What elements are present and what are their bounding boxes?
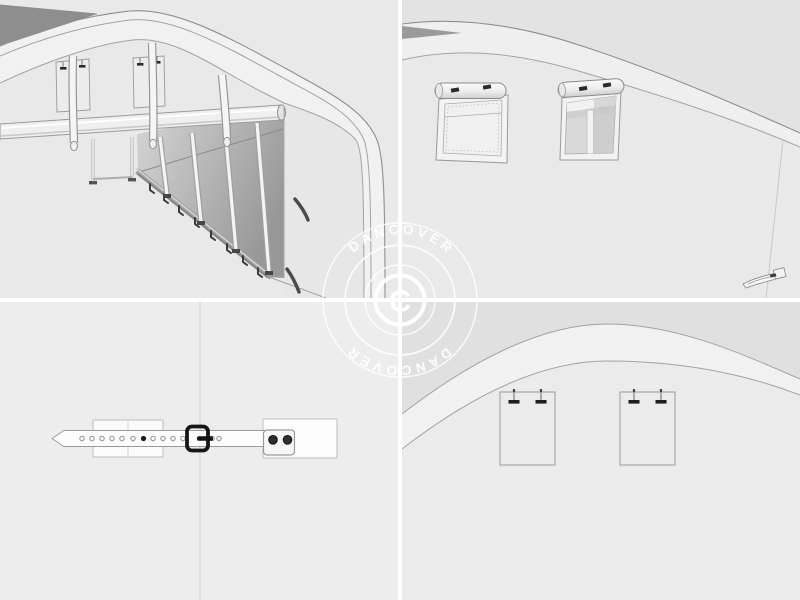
rivet-plate — [264, 430, 295, 455]
closed-panel-left — [500, 389, 555, 465]
window-rollup-open — [558, 78, 625, 160]
panel-clip-icon — [656, 400, 667, 404]
strap-hole-engaged — [141, 436, 146, 441]
product-image-grid: C DANCOVER DANCOVER — [0, 0, 800, 600]
panel-clip-icon — [629, 400, 640, 404]
strap — [52, 431, 266, 447]
rolled-cover — [435, 83, 506, 99]
panel-clip-icon — [509, 400, 520, 404]
illustration-tent-interior-opening — [0, 0, 398, 298]
closed-panel-right — [620, 389, 675, 465]
rivet-icon — [269, 436, 278, 445]
illustration-side-wall-windows — [402, 0, 800, 298]
panel-clip-icon — [536, 400, 547, 404]
rivet-icon — [283, 436, 292, 445]
illustration-strap-buckle — [0, 302, 398, 600]
buckle-prong — [197, 436, 213, 441]
flap-clip-icon — [60, 67, 67, 70]
window-rollup-closed — [435, 83, 508, 163]
flap-clip-icon — [137, 63, 144, 66]
illustration-end-wall-panels — [402, 302, 800, 600]
flap-clip-icon — [79, 65, 86, 68]
